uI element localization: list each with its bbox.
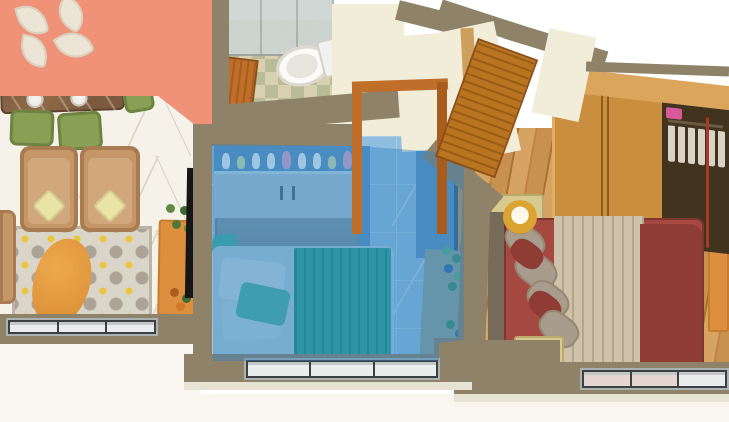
window-pane [375, 362, 436, 376]
clothes-rail [668, 119, 723, 167]
armchair [20, 146, 78, 232]
window [580, 368, 729, 390]
wall-cap [193, 124, 212, 384]
window-pane [59, 322, 106, 332]
wardrobe-pole [706, 118, 709, 248]
window-pane [107, 322, 154, 332]
armchair [80, 146, 140, 232]
window-pane [679, 372, 725, 386]
wall-shadow [184, 382, 472, 390]
leaf-wall-decor-icon [16, 0, 112, 68]
sofa-partial [0, 210, 16, 304]
doorway-frame-leg [352, 86, 362, 234]
hanging-clothes-item [688, 127, 695, 164]
window-pane [10, 322, 57, 332]
window [6, 318, 158, 336]
window-pane [311, 362, 372, 376]
storage-box [666, 107, 682, 120]
window-pane [248, 362, 309, 376]
window-pane [584, 372, 630, 386]
hanging-clothes-item [698, 129, 705, 166]
window [244, 358, 440, 380]
dining-chair [9, 109, 54, 147]
hanging-clothes-item [678, 126, 685, 163]
table-lamp [503, 200, 537, 234]
floor-plan-render [0, 0, 729, 422]
hanging-clothes-item [668, 125, 675, 162]
window-pane [632, 372, 678, 386]
hanging-clothes-item [708, 130, 715, 167]
hanging-clothes-item [718, 131, 725, 168]
wall-cap [206, 124, 360, 146]
bed-right-foot-bolster [640, 224, 702, 370]
wall-shadow [454, 394, 729, 402]
